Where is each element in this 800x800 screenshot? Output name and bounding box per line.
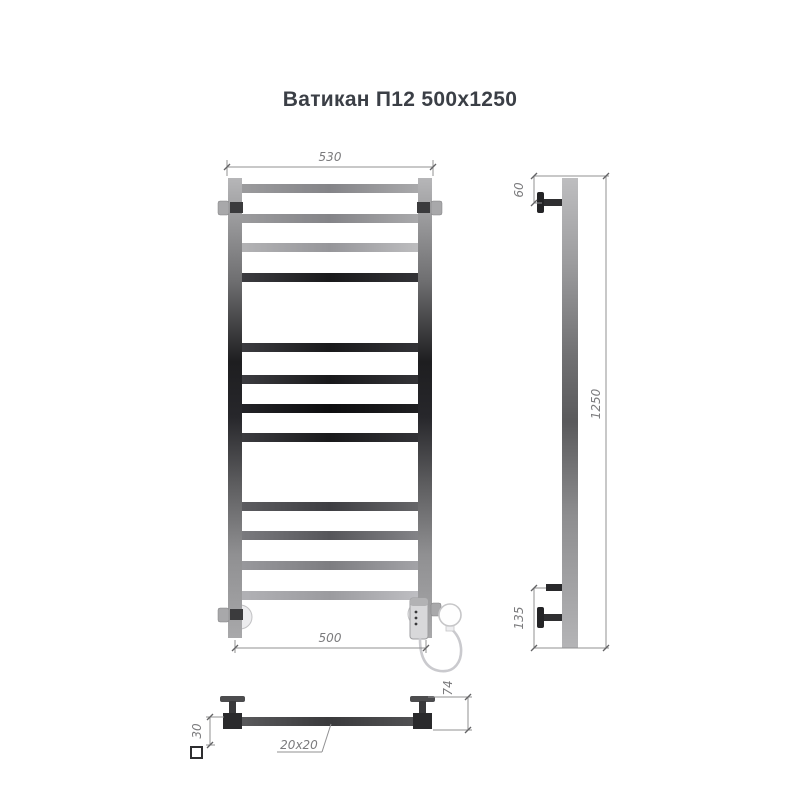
rung-6: [242, 375, 418, 384]
dim-bottom-width: 500: [232, 631, 429, 653]
side-view: 60 1250 135: [512, 173, 609, 651]
tube-profile-callout: 20x20: [277, 724, 331, 752]
bracket-stem: [543, 614, 562, 621]
dim-label-top-width: 530: [319, 150, 342, 164]
post-section-right: [413, 713, 432, 729]
rung-5: [242, 343, 418, 352]
dim-label-top-bracket-offset: 60: [512, 182, 526, 198]
dim-wall-depth: 74: [428, 680, 472, 733]
dim-label-bracket-depth: 30: [190, 723, 204, 739]
dim-label-tube-profile: 20x20: [280, 738, 318, 752]
technical-drawing-canvas: Ватикан П12 500x1250: [0, 0, 800, 800]
led-dot: [415, 611, 418, 614]
bracket-stem: [419, 701, 426, 714]
callout-leader-line: [322, 724, 331, 752]
rung-10: [242, 531, 418, 540]
rung-7: [242, 404, 418, 413]
led-dot: [415, 623, 418, 626]
mount-knob: [417, 202, 430, 213]
rung-12: [242, 591, 418, 600]
bottom-rung-bar: [242, 717, 413, 726]
rung-8: [242, 433, 418, 442]
bottom-left-bracket: [220, 696, 245, 714]
rung-3: [242, 243, 418, 252]
bottom-view: 30 74 20x20: [190, 680, 472, 758]
side-bottom-wall-bracket: [537, 607, 562, 628]
bracket-wall-plate: [537, 607, 544, 628]
side-rung-end: [546, 584, 562, 591]
rungs: [242, 184, 418, 600]
bracket-stem: [543, 199, 562, 206]
dim-overall-height: 1250: [589, 173, 609, 651]
dim-bracket-depth: 30: [190, 714, 224, 758]
mount-nub: [431, 201, 442, 215]
control-unit-cap: [410, 598, 428, 606]
dim-label-wall-depth: 74: [441, 680, 455, 695]
mount-knob: [230, 202, 243, 213]
bottom-right-bracket: [410, 696, 435, 714]
bottom-left-wall-mount: [218, 608, 243, 622]
rung-1: [242, 184, 418, 193]
plug-head: [439, 604, 461, 626]
top-right-wall-mount: [417, 201, 442, 215]
dim-label-overall-height: 1250: [589, 388, 603, 419]
dim-top-width: 530: [224, 150, 436, 176]
power-plug: [439, 604, 461, 631]
dim-label-bottom-bracket-offset: 135: [512, 607, 526, 630]
mount-nub: [218, 608, 229, 622]
led-dot: [415, 617, 418, 620]
post-section-left: [223, 713, 242, 729]
mount-nub: [218, 201, 229, 215]
drawing-title: Ватикан П12 500x1250: [283, 88, 517, 111]
dim-label-bottom-width: 500: [319, 631, 342, 645]
mount-knob: [230, 609, 243, 620]
front-view: 530 500: [218, 150, 461, 671]
front-left-post: [228, 178, 242, 638]
rung-2: [242, 214, 418, 223]
top-left-wall-mount: [218, 201, 243, 215]
side-post: [562, 178, 578, 648]
rung-9: [242, 502, 418, 511]
power-control-unit: [410, 598, 428, 639]
square-profile-icon: [191, 747, 202, 758]
front-right-post: [418, 178, 432, 638]
bracket-stem: [229, 701, 236, 714]
rung-11: [242, 561, 418, 570]
rung-4: [242, 273, 418, 282]
